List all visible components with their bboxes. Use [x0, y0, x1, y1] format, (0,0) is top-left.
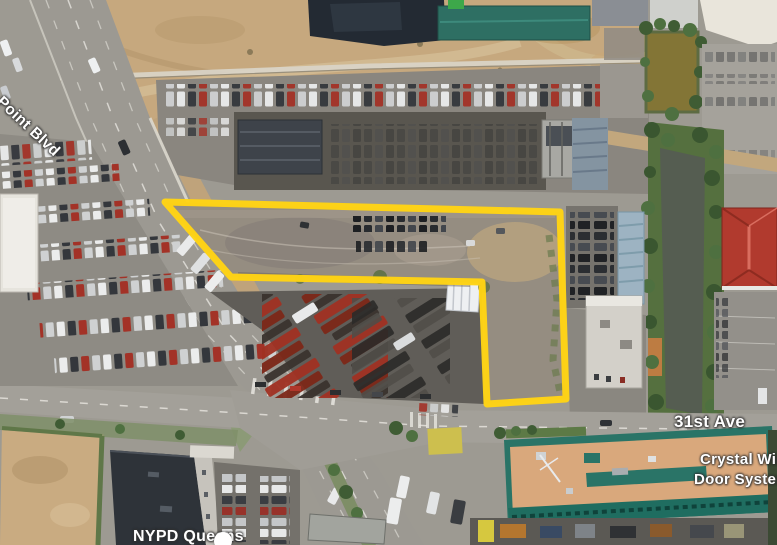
business-label-crystal-window-line1: Crystal Window	[700, 451, 777, 468]
blue-shed	[618, 212, 644, 304]
red-building-parking	[714, 292, 777, 410]
white-flat-building	[586, 296, 642, 388]
container-stacks	[572, 118, 608, 190]
pond	[639, 18, 707, 121]
industrial-building-center	[238, 120, 322, 174]
red-roof-building	[722, 208, 777, 290]
business-label-crystal-window-line2: Door Systems	[694, 471, 777, 488]
map-canvas[interactable]: e Point Blvd 31st Ave Crystal Window Doo…	[0, 0, 777, 545]
poi-marker-icon	[214, 532, 232, 545]
road-label-31st-ave: 31st Ave	[674, 412, 745, 432]
creek-channel	[641, 122, 724, 434]
teal-roof-building	[438, 0, 590, 40]
satellite-image	[0, 0, 777, 545]
